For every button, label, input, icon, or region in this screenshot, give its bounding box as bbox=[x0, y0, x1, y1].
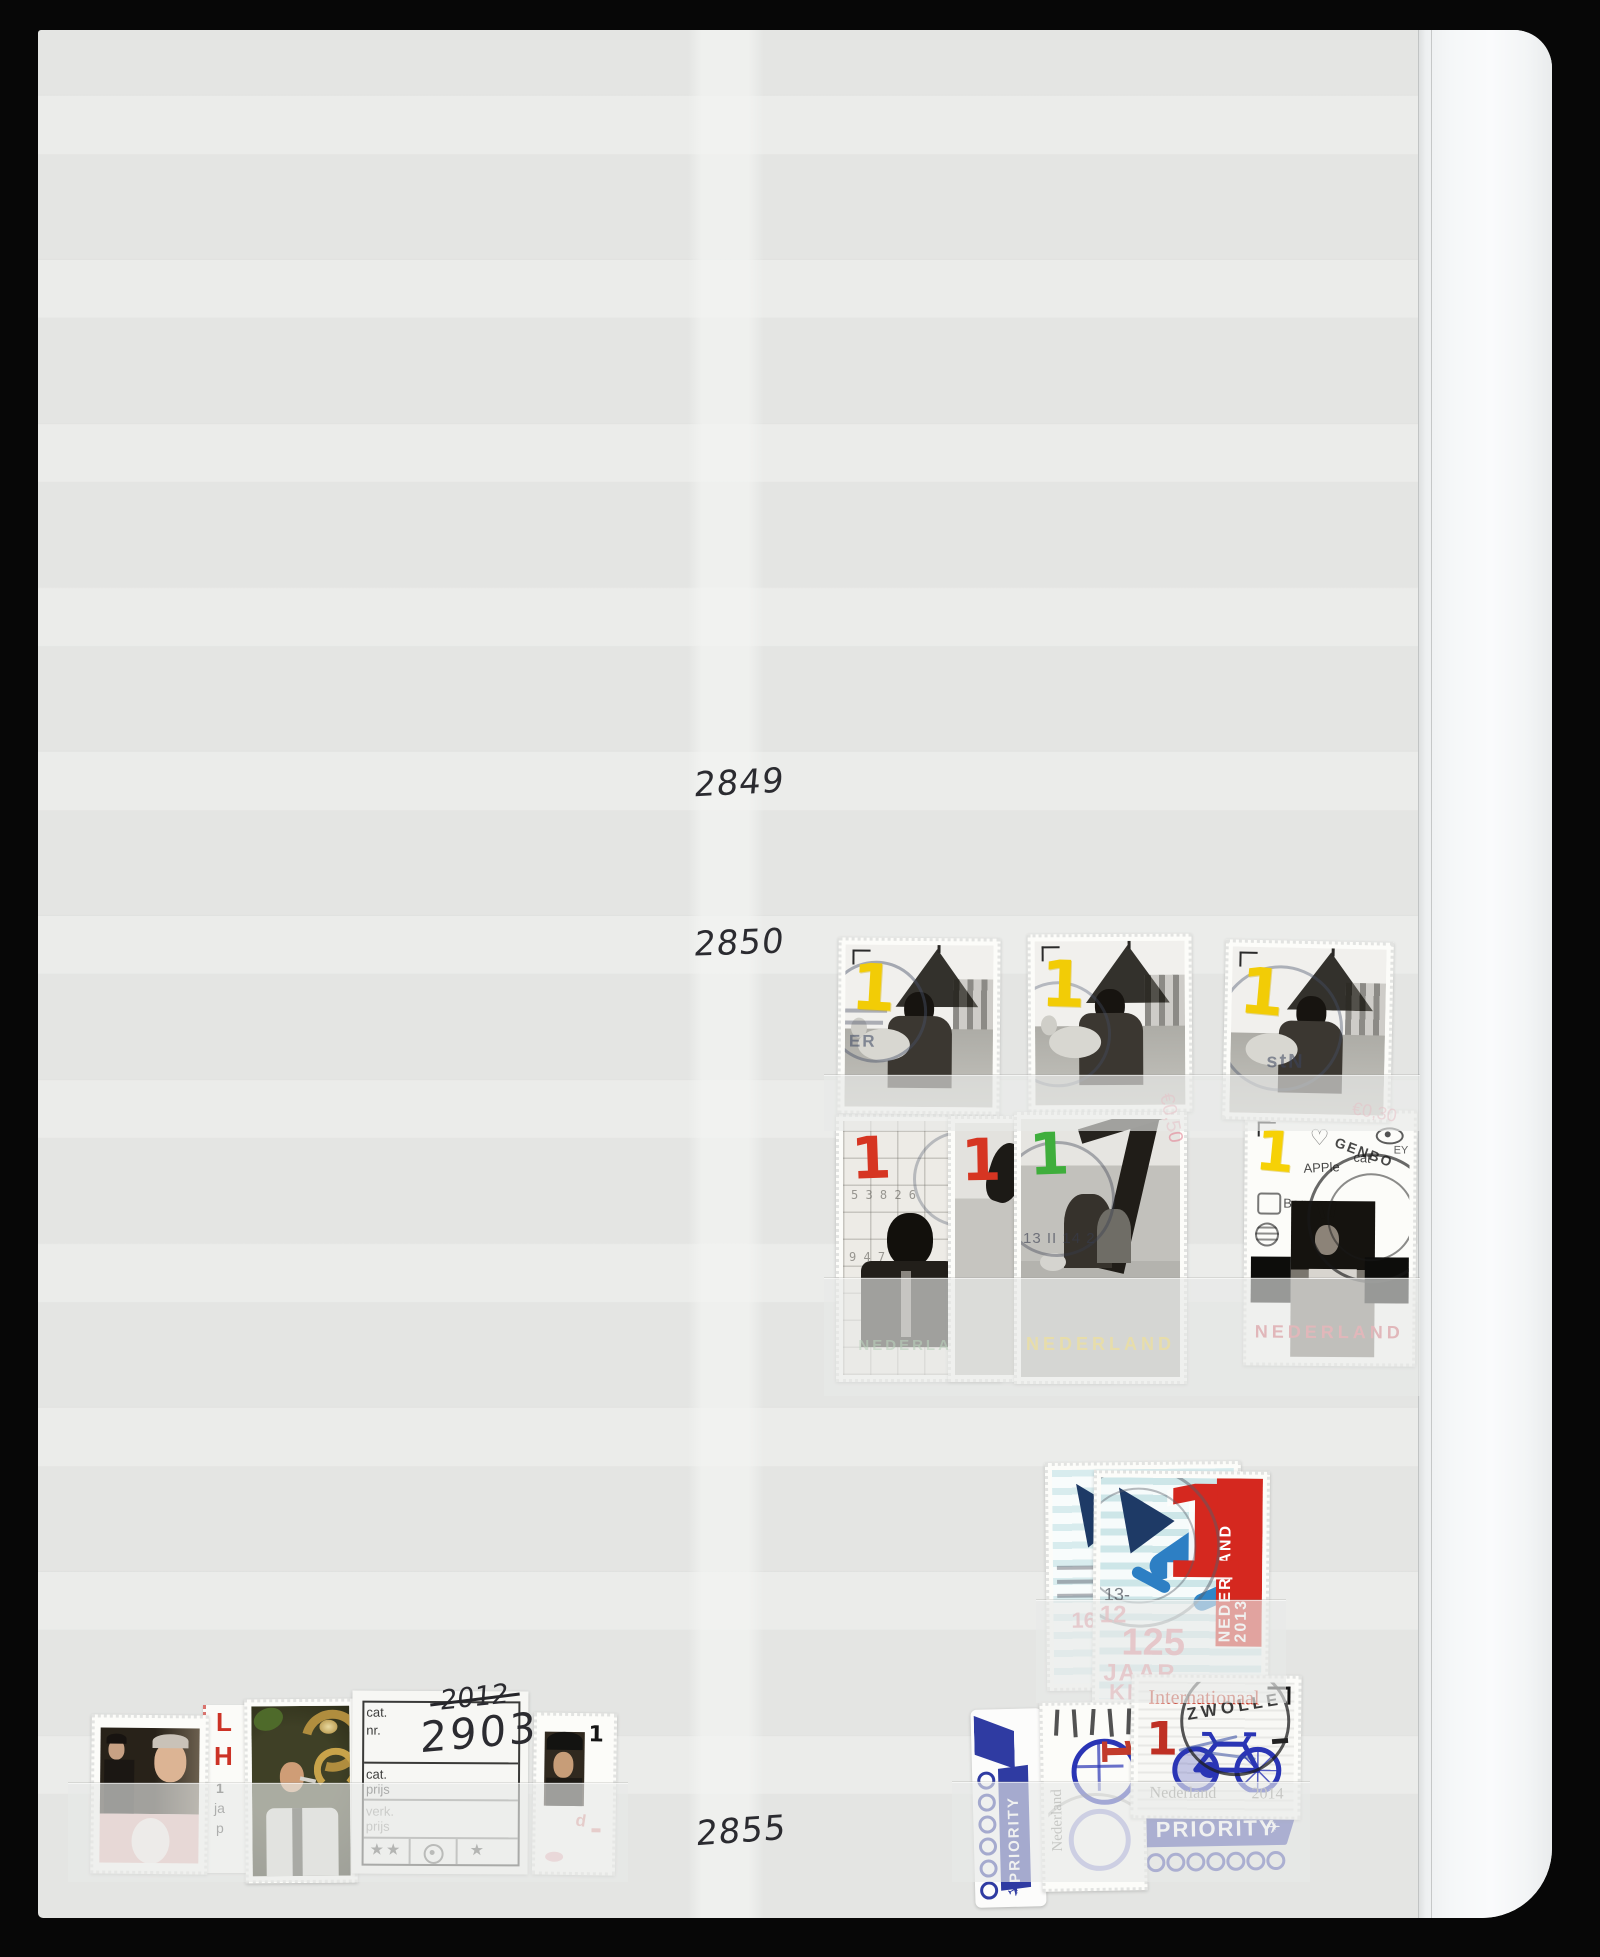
cancel-date: 13 II 14 2 bbox=[1023, 1231, 1096, 1246]
tuba-bell-highlight bbox=[319, 1720, 337, 1734]
stamp-album-photo: ER 1 1 bbox=[0, 0, 1600, 1957]
postmark-ring-inner bbox=[1327, 1173, 1410, 1262]
label-cat2: cat. bbox=[366, 1768, 387, 1781]
priority-wedge-shape bbox=[974, 1715, 1015, 1770]
denomination-1: 1 bbox=[849, 955, 897, 1022]
face-shape bbox=[553, 1752, 573, 1778]
denomination-1: 1 bbox=[1237, 959, 1287, 1027]
denomination-1: 1 bbox=[588, 1724, 604, 1746]
postmark-bar-vertical bbox=[1090, 1709, 1096, 1735]
pocket-film-strip bbox=[68, 1783, 628, 1882]
hut-spike-shape bbox=[1128, 941, 1131, 949]
label-cat: cat. bbox=[366, 1706, 387, 1719]
ball-doodle-icon bbox=[1255, 1222, 1279, 1246]
eye-doodle-pupil bbox=[1385, 1131, 1391, 1137]
pocket-film-strip bbox=[952, 1782, 1310, 1882]
pocket-film-strip bbox=[824, 1278, 1420, 1396]
letter-h: H bbox=[214, 1743, 233, 1769]
denomination-1: 1 bbox=[1040, 953, 1086, 1018]
postmark-bar-vertical bbox=[1108, 1709, 1114, 1737]
label-nr: nr. bbox=[366, 1724, 381, 1737]
handwritten-number-2850: 2850 bbox=[692, 924, 786, 961]
postmark-bar-vertical bbox=[1072, 1709, 1078, 1737]
bag-doodle-icon bbox=[1257, 1192, 1281, 1214]
handwritten-number-2855: 2855 bbox=[695, 1811, 788, 1852]
handwritten-number-2903: 2903 bbox=[420, 1707, 539, 1760]
boy-head-shape bbox=[887, 1213, 933, 1267]
pocket-film-strip bbox=[1036, 1600, 1286, 1703]
letter-l: L bbox=[216, 1709, 232, 1735]
denomination-1: 1 bbox=[960, 1131, 1001, 1190]
page-right-edge bbox=[1418, 30, 1552, 1918]
doodle-word-eye: EY bbox=[1394, 1145, 1409, 1156]
denomination-1: 1 bbox=[850, 1128, 892, 1187]
hair-shape bbox=[107, 1734, 127, 1744]
hut-spike-shape bbox=[937, 944, 940, 953]
denomination-1: 1 bbox=[1028, 1124, 1070, 1183]
page-center-light-band bbox=[688, 30, 764, 1918]
priority-circle bbox=[980, 1881, 998, 1899]
pocket-film-strip bbox=[824, 1075, 1420, 1131]
denomination-rotated: 1 bbox=[1095, 1736, 1135, 1765]
postmark-letters: ER bbox=[849, 1033, 877, 1050]
cap-shape bbox=[547, 1732, 583, 1751]
denomination-1: 1 bbox=[1253, 1123, 1297, 1182]
page-edge-seam-line bbox=[1431, 30, 1432, 1918]
hut-spike-shape bbox=[1331, 946, 1334, 956]
handwritten-number-2849: 2849 bbox=[693, 764, 786, 803]
gray-hair-shape bbox=[152, 1734, 188, 1748]
postmark-letters: stN bbox=[1266, 1051, 1305, 1072]
